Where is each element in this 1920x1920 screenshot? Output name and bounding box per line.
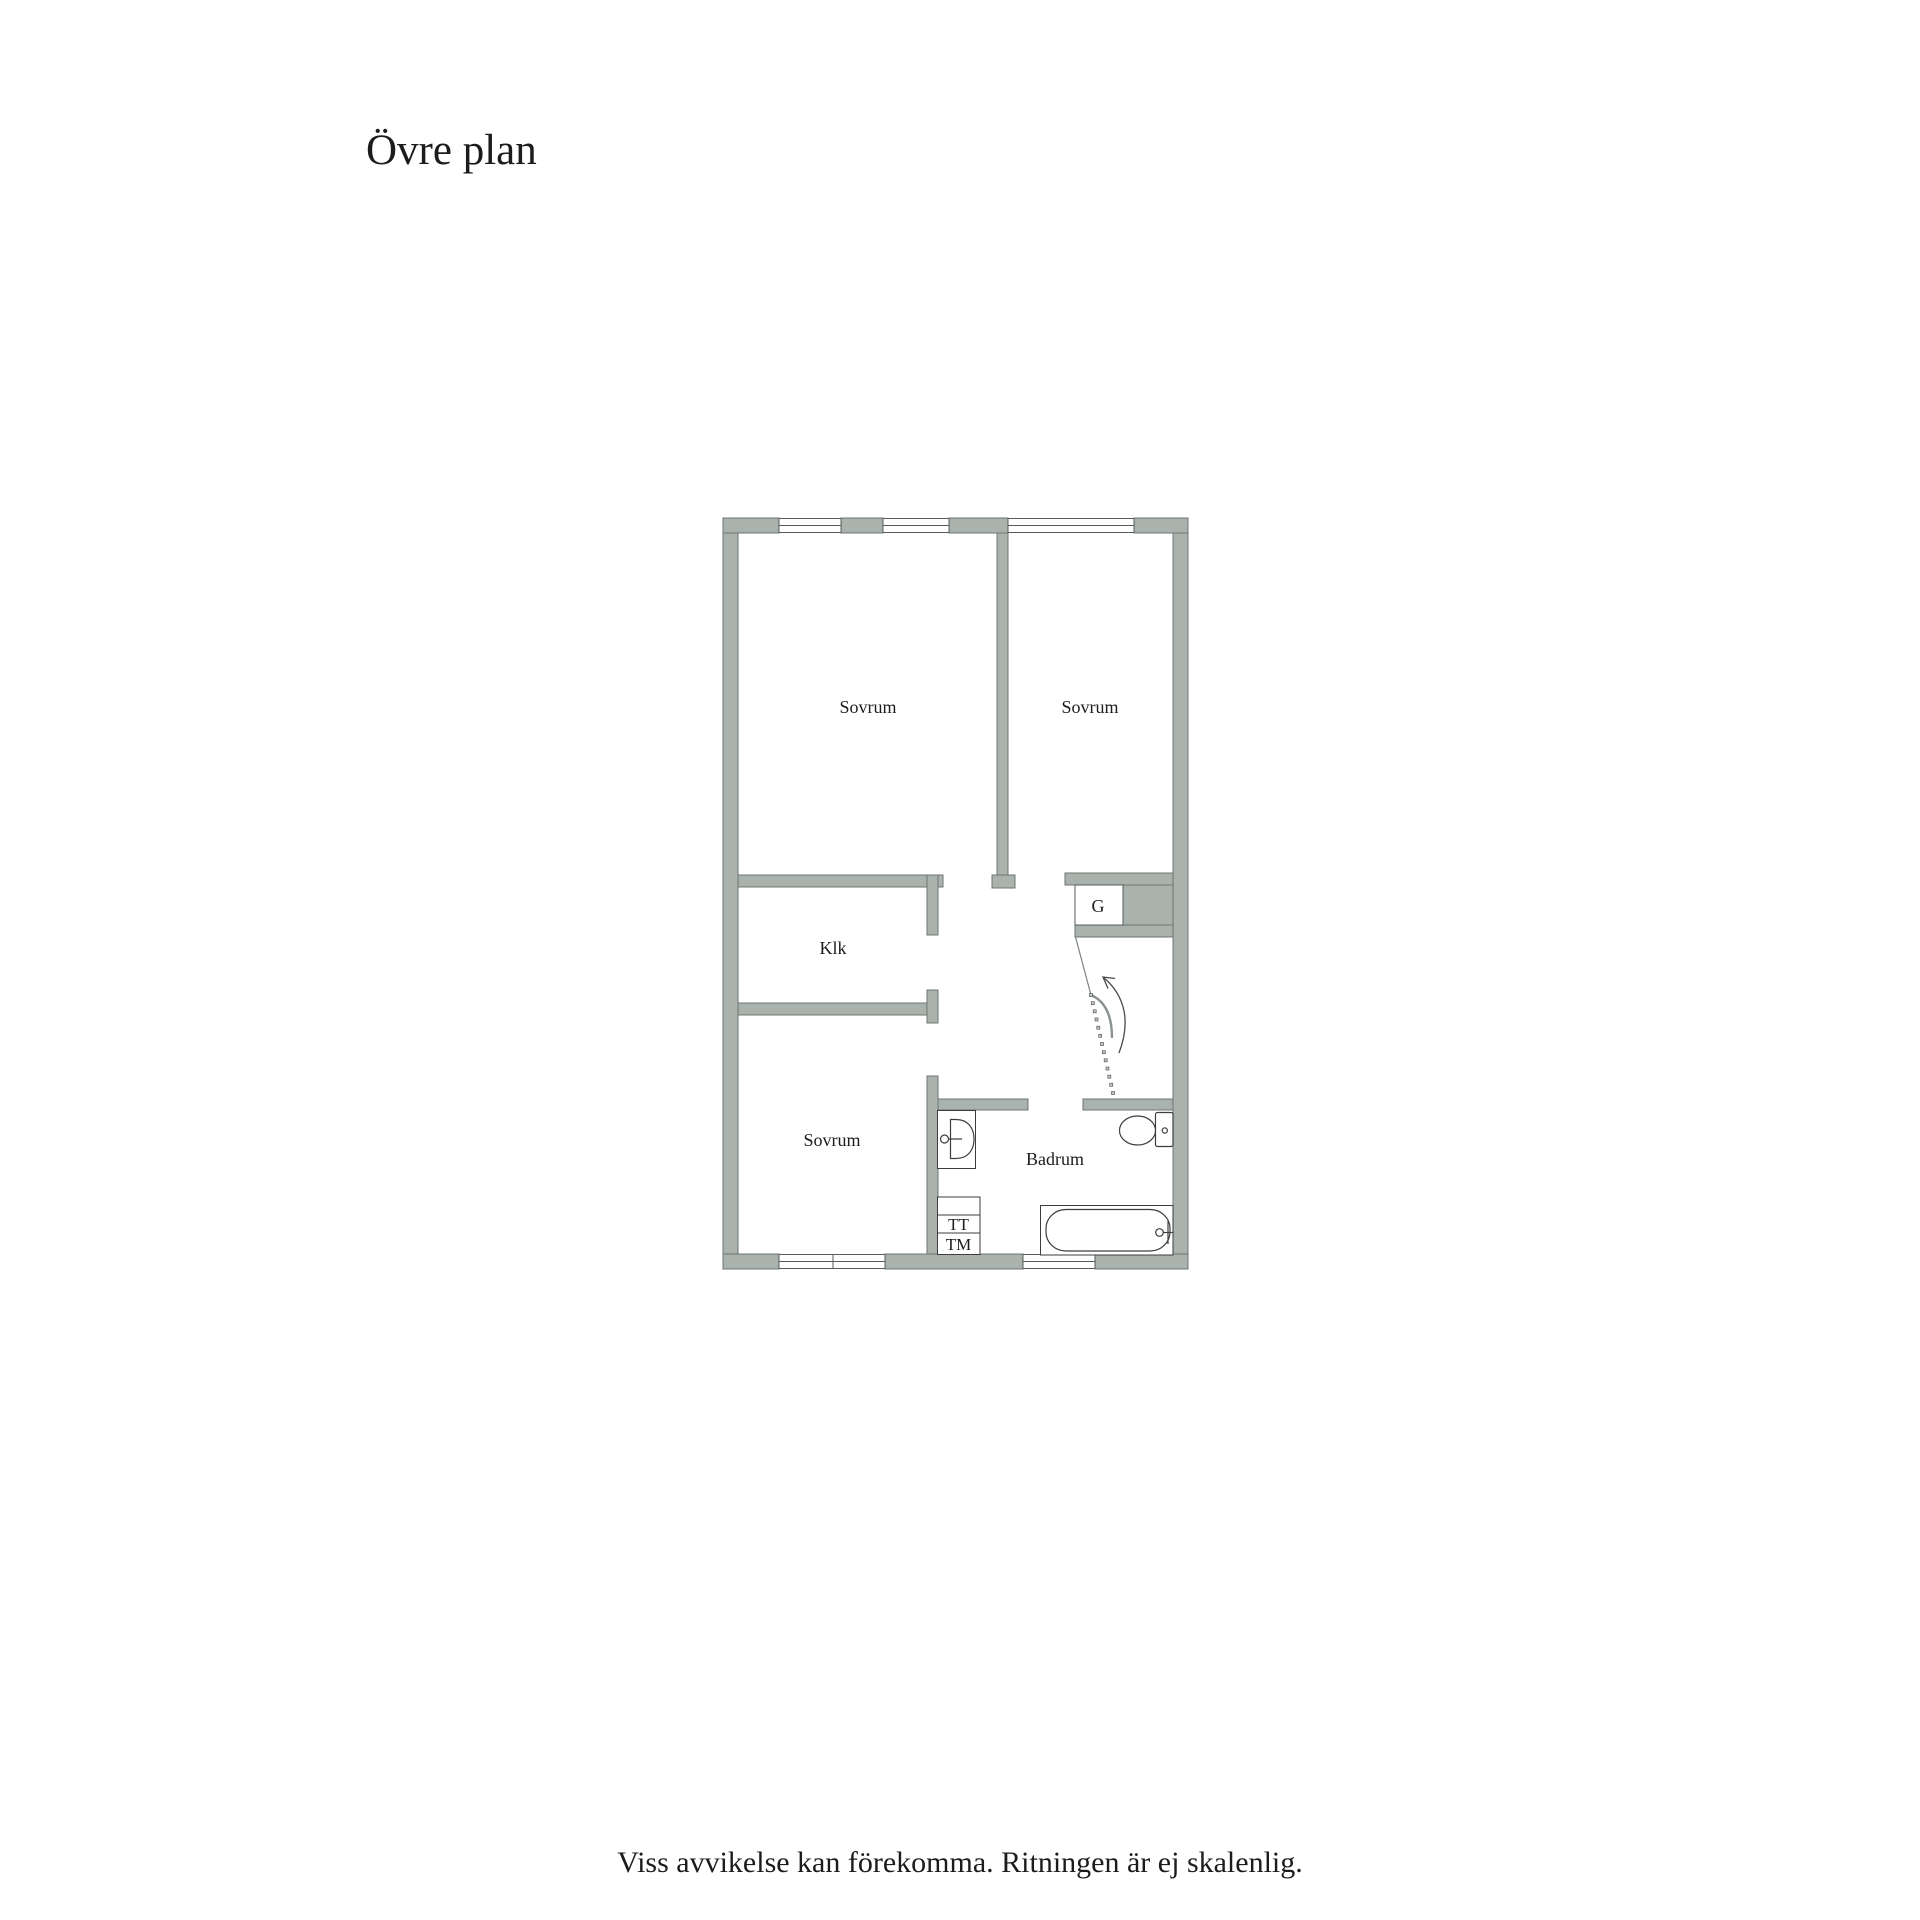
- room-label-bedroom-bottom: Sovrum: [803, 1130, 860, 1150]
- wall-wardrobe-bottom: [1075, 925, 1173, 937]
- wall-top-seg4: [1134, 518, 1188, 533]
- toilet-bowl-icon: [1120, 1116, 1156, 1145]
- stair-step-dot: [1110, 1083, 1113, 1086]
- wall-bottom-seg2: [885, 1254, 1023, 1269]
- disclaimer-text: Viss avvikelse kan förekomma. Ritningen …: [0, 1846, 1920, 1880]
- room-label-wardrobe: G: [1092, 896, 1105, 916]
- wall-stair-bottom: [1083, 1099, 1173, 1110]
- wall-right: [1173, 518, 1188, 1269]
- wall-sink-niche: [938, 1099, 1028, 1110]
- wall-klk-bottom-stub: [927, 990, 938, 1023]
- toilet-flush-button: [1162, 1128, 1167, 1133]
- wall-bottom-seg3: [1095, 1254, 1188, 1269]
- label-tumble-dryer: TT: [948, 1215, 969, 1234]
- wall-top-seg3: [949, 518, 1008, 533]
- wall-top-seg1: [723, 518, 779, 533]
- wall-bottom-seg1: [723, 1254, 779, 1269]
- floorplan-page: { "title": "Övre plan", "footer": "Viss …: [0, 0, 1920, 1920]
- stair-step-dot: [1112, 1092, 1115, 1095]
- stair-step-dot: [1091, 1002, 1094, 1005]
- room-label-bedroom-top-right: Sovrum: [1061, 697, 1118, 717]
- wall-wardrobe-top: [1065, 873, 1173, 885]
- wall-wardrobe-fill: [1123, 885, 1173, 926]
- wall-left: [723, 518, 738, 1269]
- staircase: [1076, 937, 1126, 1095]
- stair-step-dot: [1101, 1043, 1104, 1046]
- stair-step-dot: [1095, 1018, 1098, 1021]
- appliance-shelf: [938, 1197, 981, 1215]
- wall-klk-top-stub: [927, 875, 938, 935]
- bathtub-faucet-icon: [1156, 1229, 1164, 1237]
- label-washing-machine: TM: [946, 1235, 972, 1254]
- stair-railing-line: [1076, 937, 1092, 995]
- wall-top-seg2: [841, 518, 883, 533]
- stair-step-dot: [1102, 1051, 1105, 1054]
- wall-klk-bottom: [738, 1003, 927, 1015]
- room-label-closet: Klk: [820, 938, 847, 958]
- stair-step-dot: [1106, 1067, 1109, 1070]
- stair-step-dot: [1104, 1059, 1107, 1062]
- bathtub-icon: [1046, 1210, 1170, 1252]
- stair-step-dot: [1097, 1026, 1100, 1029]
- wall-bedroom-divider: [997, 533, 1008, 876]
- stair-direction-arrow-icon: [1103, 977, 1125, 1053]
- stair-step-dot: [1099, 1034, 1102, 1037]
- stair-step-dot: [1090, 994, 1093, 997]
- sink-tap-icon: [941, 1135, 949, 1143]
- bathroom-fixtures: [938, 1111, 1174, 1256]
- stair-step-dot: [1093, 1010, 1096, 1013]
- room-label-bathroom: Badrum: [1026, 1149, 1084, 1169]
- wall-bathroom-divider: [927, 1076, 938, 1254]
- wall-bedroom-divider-endcap: [992, 875, 1015, 888]
- floor-plan: Sovrum Sovrum Klk Sovrum Badrum G TT TM: [0, 0, 1920, 1920]
- room-label-bedroom-top-left: Sovrum: [839, 697, 896, 717]
- stair-step-dot: [1108, 1075, 1111, 1078]
- wall-klk-top: [738, 875, 943, 887]
